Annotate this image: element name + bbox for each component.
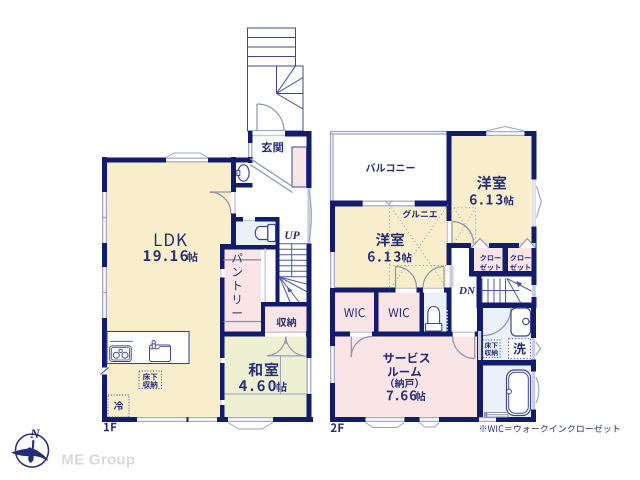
svg-text:DN: DN (458, 285, 476, 297)
svg-text:ME Group: ME Group (61, 452, 135, 469)
svg-text:N: N (29, 426, 40, 441)
svg-text:UP: UP (284, 230, 300, 242)
